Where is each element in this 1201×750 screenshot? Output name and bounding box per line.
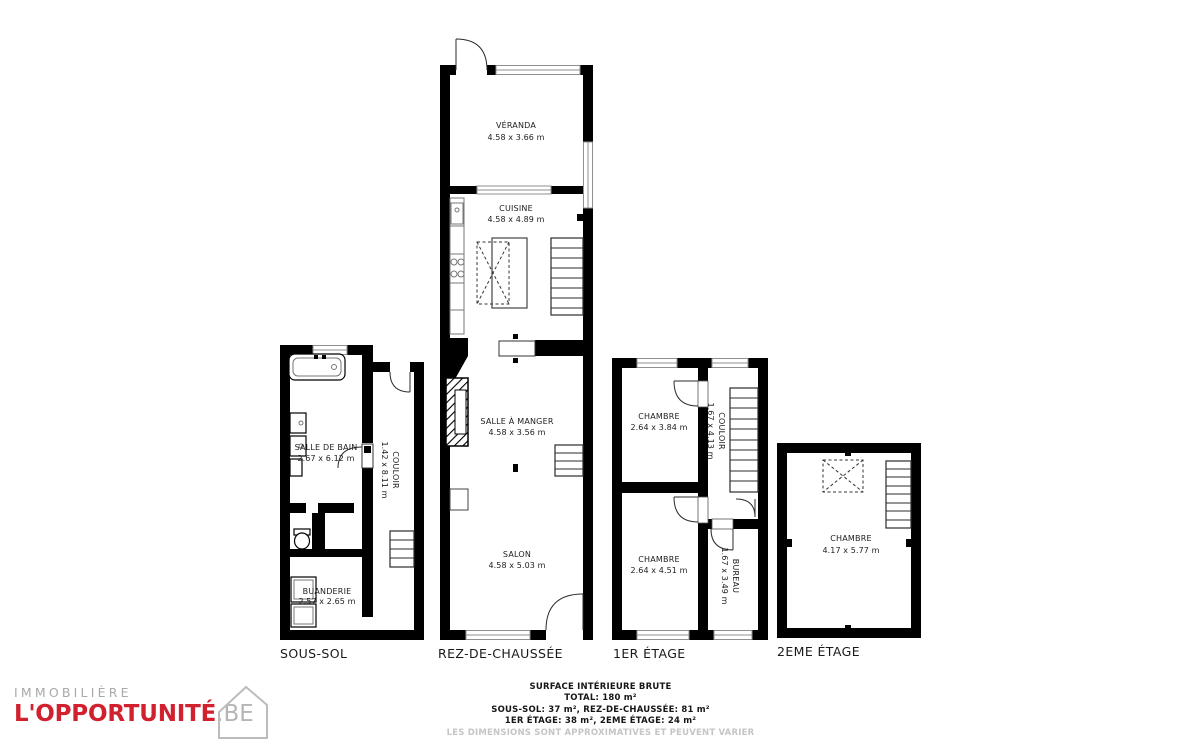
staircase-deuxieme bbox=[886, 461, 911, 528]
staircase-premier bbox=[730, 388, 758, 492]
kitchen-island bbox=[477, 238, 527, 308]
bathtub bbox=[289, 354, 345, 380]
room-label-couloir-1er: COULOIR bbox=[717, 412, 726, 450]
room-dims-bureau: 1.67 x 3.49 m bbox=[720, 547, 729, 604]
floor-plan-deuxieme-etage: CHAMBRE 4.17 x 5.77 m 2EME ÉTAGE bbox=[777, 443, 921, 659]
couloir-entry-door bbox=[390, 372, 410, 392]
chambre2-door bbox=[674, 497, 708, 523]
window bbox=[313, 346, 347, 355]
summary-line1: SOUS-SOL: 37 m², REZ-DE-CHAUSSÉE: 81 m² bbox=[0, 705, 1201, 716]
bureau-door bbox=[711, 519, 733, 550]
room-dims-salle-de-bain: 2.67 x 6.12 m bbox=[297, 454, 354, 463]
fireplace-hatch bbox=[446, 378, 468, 446]
kitchen-counter bbox=[450, 198, 464, 334]
surface-summary: SURFACE INTÉRIEURE BRUTE TOTAL: 180 m² S… bbox=[0, 682, 1201, 739]
floor-plan-rez-de-chaussee: VÉRANDA 4.58 x 3.66 m CUISINE 4.58 x 4.8… bbox=[438, 39, 593, 661]
room-label-salon: SALON bbox=[503, 550, 531, 559]
room-dims-buanderie: 2.57 x 2.65 m bbox=[298, 597, 355, 606]
room-dims-couloir-ss: 1.42 x 8.11 m bbox=[380, 441, 389, 498]
staircase-mezzanine bbox=[555, 445, 583, 476]
floor-plan-premier-etage: CHAMBRE 2.64 x 3.84 m COULOIR 1.67 x 4.1… bbox=[612, 358, 768, 661]
stove-burners bbox=[451, 259, 464, 277]
room-dims-chambre-2eme: 4.17 x 5.77 m bbox=[822, 546, 879, 555]
room-label-chambre-1: CHAMBRE bbox=[638, 412, 679, 421]
room-label-bureau: BUREAU bbox=[731, 559, 740, 594]
room-label-couloir-ss: COULOIR bbox=[391, 451, 400, 489]
floor-marker bbox=[513, 464, 518, 472]
room-dims-couloir-1er: 1.67 x 4.13 m bbox=[706, 402, 715, 459]
entry-door bbox=[456, 39, 487, 75]
summary-disclaimer: LES DIMENSIONS SONT APPROXIMATIVES ET PE… bbox=[0, 728, 1201, 739]
room-label-cuisine: CUISINE bbox=[499, 204, 533, 213]
floor-label-premier-etage: 1ER ÉTAGE bbox=[613, 646, 686, 661]
room-dims-chambre-1: 2.64 x 3.84 m bbox=[630, 423, 687, 432]
floor-label-sous-sol: SOUS-SOL bbox=[280, 646, 347, 661]
room-label-veranda: VÉRANDA bbox=[496, 119, 536, 130]
wall-tick bbox=[577, 214, 583, 221]
cupboard bbox=[450, 489, 468, 510]
toilet bbox=[294, 529, 310, 549]
room-dims-cuisine: 4.58 x 4.89 m bbox=[487, 215, 544, 224]
room-dims-salle-a-manger: 4.58 x 3.56 m bbox=[488, 428, 545, 437]
room-dims-veranda: 4.58 x 3.66 m bbox=[487, 133, 544, 142]
chambre1-door bbox=[674, 381, 708, 407]
summary-total: TOTAL: 180 m² bbox=[0, 693, 1201, 704]
room-label-salle-a-manger: SALLE À MANGER bbox=[480, 415, 553, 426]
couloir-door bbox=[736, 499, 755, 517]
room-label-salle-de-bain: SALLE DE BAIN bbox=[295, 443, 358, 452]
floor-label-rez-de-chaussee: REZ-DE-CHAUSSÉE bbox=[438, 646, 563, 661]
room-dims-chambre-2: 2.64 x 4.51 m bbox=[630, 566, 687, 575]
summary-line2: 1ER ÉTAGE: 38 m², 2EME ÉTAGE: 24 m² bbox=[0, 716, 1201, 727]
floor-plan-sous-sol: SALLE DE BAIN 2.67 x 6.12 m COULOIR 1.42… bbox=[280, 345, 424, 661]
room-dims-salon: 4.58 x 5.03 m bbox=[488, 561, 545, 570]
staircase-rdc bbox=[551, 238, 583, 315]
room-label-chambre-2eme: CHAMBRE bbox=[830, 534, 871, 543]
floorplan-page: SALLE DE BAIN 2.67 x 6.12 m COULOIR 1.42… bbox=[0, 0, 1201, 750]
summary-title: SURFACE INTÉRIEURE BRUTE bbox=[0, 682, 1201, 693]
room-label-chambre-2: CHAMBRE bbox=[638, 555, 679, 564]
floor-label-deuxieme-etage: 2EME ÉTAGE bbox=[777, 644, 860, 659]
staircase-sous-sol bbox=[390, 531, 414, 567]
salon-door bbox=[546, 594, 583, 640]
floorplan-svg: SALLE DE BAIN 2.67 x 6.12 m COULOIR 1.42… bbox=[0, 0, 1201, 750]
pocket-door bbox=[499, 334, 535, 363]
room-label-buanderie: BUANDERIE bbox=[303, 587, 352, 596]
skylight bbox=[823, 460, 863, 492]
